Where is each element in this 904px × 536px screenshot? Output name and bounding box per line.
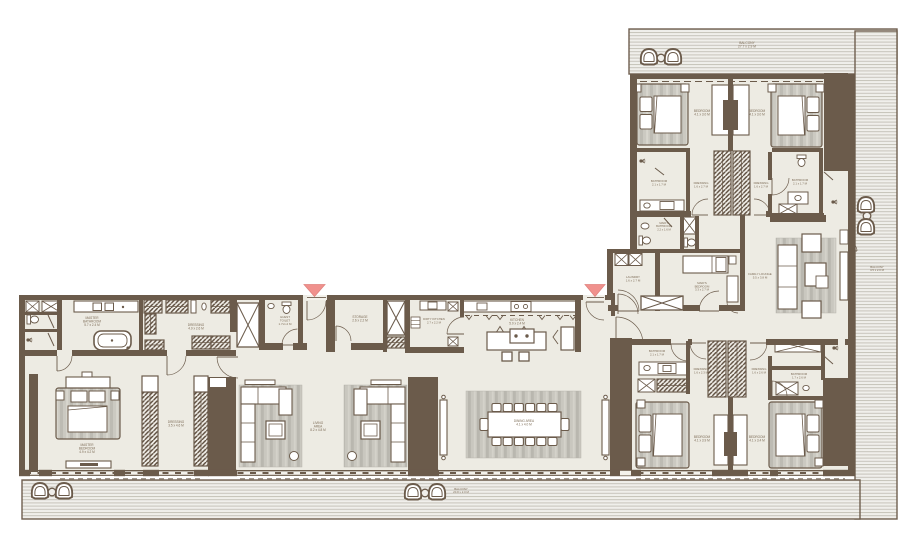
svg-text:BALCONY20.8 x 2.0 M: BALCONY20.8 x 2.0 M xyxy=(453,487,469,494)
svg-text:BEDROOM4.1 x 3.9 M: BEDROOM4.1 x 3.9 M xyxy=(694,435,711,443)
svg-text:DRESSING3.5 x 4.6 M: DRESSING3.5 x 4.6 M xyxy=(168,420,185,428)
svg-text:BATHROOM2.1 x 1.7 M: BATHROOM2.1 x 1.7 M xyxy=(651,179,668,186)
svg-text:DRESSING1.6 x 2.6 M: DRESSING1.6 x 2.6 M xyxy=(752,367,767,374)
svg-text:BEDROOM4.1 x 3.4 M: BEDROOM4.1 x 3.4 M xyxy=(749,435,766,443)
svg-text:BATHROOM1.7 x 2.6 M: BATHROOM1.7 x 2.6 M xyxy=(791,372,808,379)
svg-text:LAUNDRY1.6 x 2.7 M: LAUNDRY1.6 x 2.7 M xyxy=(626,275,641,282)
svg-text:KITCHEN5.0 x 2.4 M: KITCHEN5.0 x 2.4 M xyxy=(509,318,525,326)
svg-text:DRESSING4.9 x 2.6 M: DRESSING4.9 x 2.6 M xyxy=(188,323,205,331)
svg-text:BALCONY4.5 x 2.0 M: BALCONY4.5 x 2.0 M xyxy=(870,265,885,272)
svg-text:DRESSING1.6 x 2.7 M: DRESSING1.6 x 2.7 M xyxy=(754,181,769,188)
svg-text:GUESTTOILET1.7x1.2 M: GUESTTOILET1.7x1.2 M xyxy=(279,315,292,326)
svg-text:BEDROOM4.1 x 3.0 M: BEDROOM4.1 x 3.0 M xyxy=(749,109,766,117)
svg-text:BEDROOM4.1 x 3.0 M: BEDROOM4.1 x 3.0 M xyxy=(694,109,711,117)
svg-text:DRESSING1.6 x 2.3 M: DRESSING1.6 x 2.3 M xyxy=(694,367,709,374)
svg-text:DRESSING1.6 x 2.7 M: DRESSING1.6 x 2.7 M xyxy=(694,181,709,188)
svg-text:BALCONY27.7 x 2.9 M: BALCONY27.7 x 2.9 M xyxy=(738,41,756,49)
svg-text:STORAGE2.6 x 2.2 M: STORAGE2.6 x 2.2 M xyxy=(352,315,368,323)
svg-text:MASTERBEDROOM4.9 x 4.2 M: MASTERBEDROOM4.9 x 4.2 M xyxy=(79,443,96,454)
svg-text:BATHROOM2.1 x 1.7 M: BATHROOM2.1 x 1.7 M xyxy=(649,349,666,356)
svg-text:BATHROOM2.1 x 1.7 M: BATHROOM2.1 x 1.7 M xyxy=(792,178,809,185)
